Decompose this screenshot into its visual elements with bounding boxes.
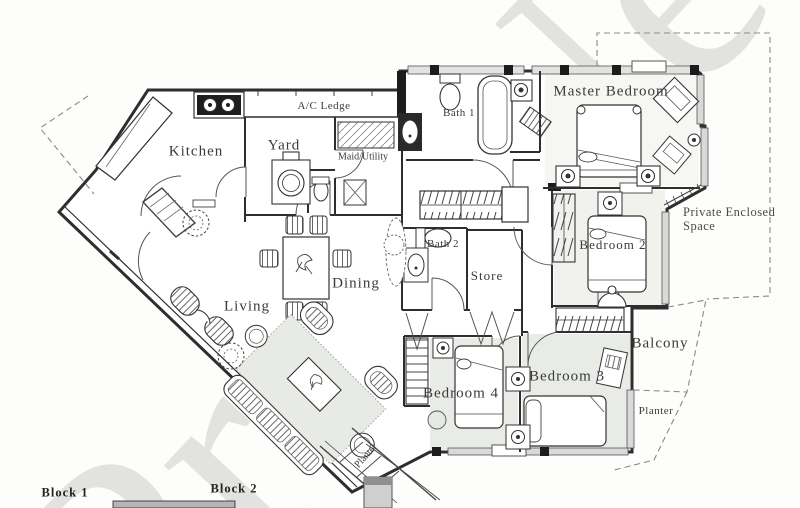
floorplan-page: PropNex bbox=[0, 0, 800, 508]
washing-machine bbox=[272, 152, 310, 204]
master-bed bbox=[577, 105, 641, 177]
floorplan-drawing bbox=[0, 0, 800, 508]
block-divider-bar bbox=[113, 501, 235, 508]
corridor-wardrobe bbox=[420, 187, 528, 222]
